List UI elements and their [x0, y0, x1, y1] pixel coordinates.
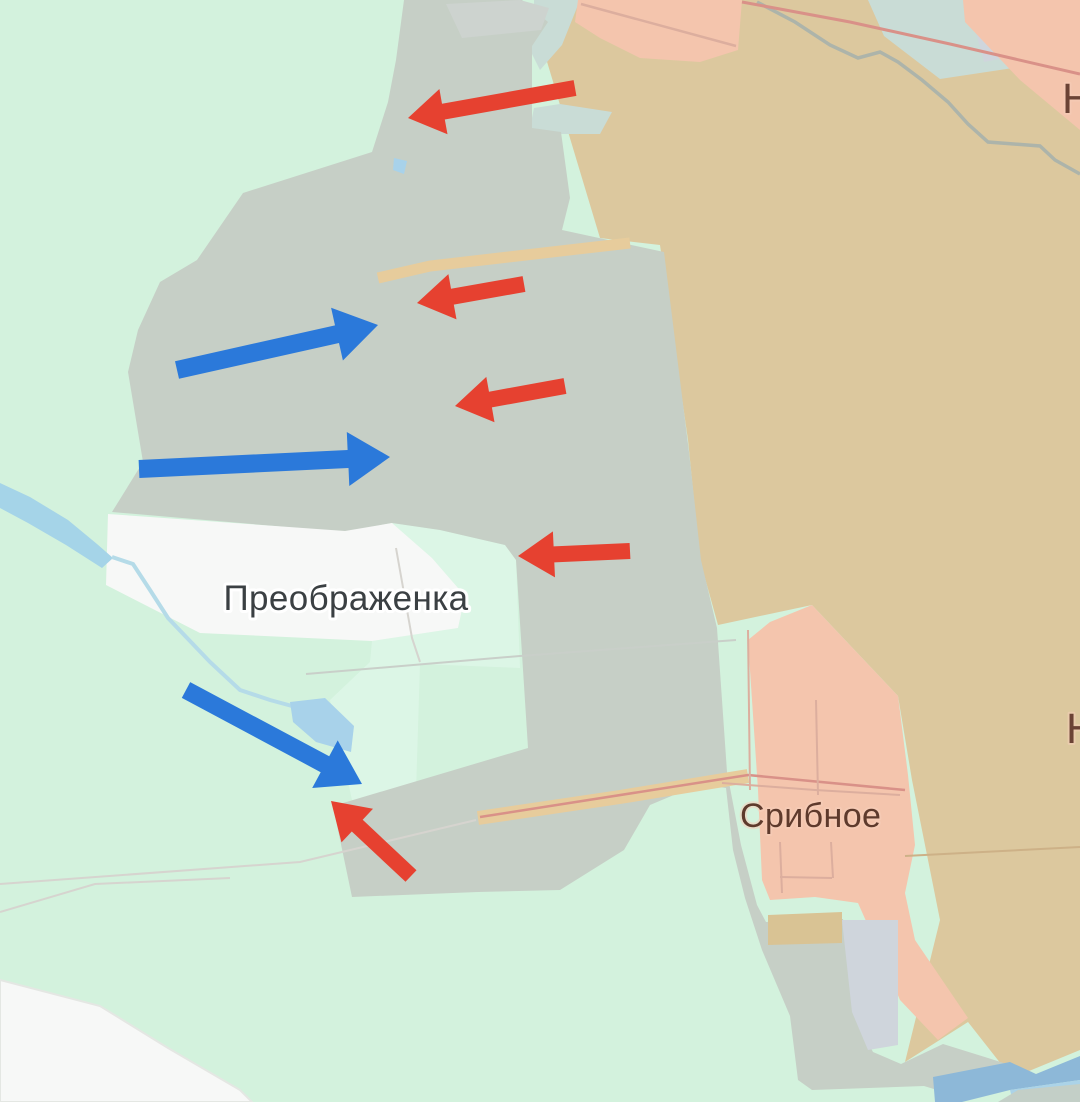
label-sribne[interactable]: Срибное [740, 797, 881, 835]
label-partial-settlement-mid-right[interactable]: Н [1066, 705, 1080, 753]
region-khaki-patch [768, 912, 842, 945]
label-partial-settlement-top-right[interactable]: Н [1062, 75, 1080, 123]
label-preobrazhenka[interactable]: Преображенка [223, 579, 468, 618]
war-situation-map[interactable]: Преображенка Срибное Н Н [0, 0, 1080, 1102]
map-canvas[interactable]: Преображенка Срибное Н Н [0, 0, 1080, 1102]
